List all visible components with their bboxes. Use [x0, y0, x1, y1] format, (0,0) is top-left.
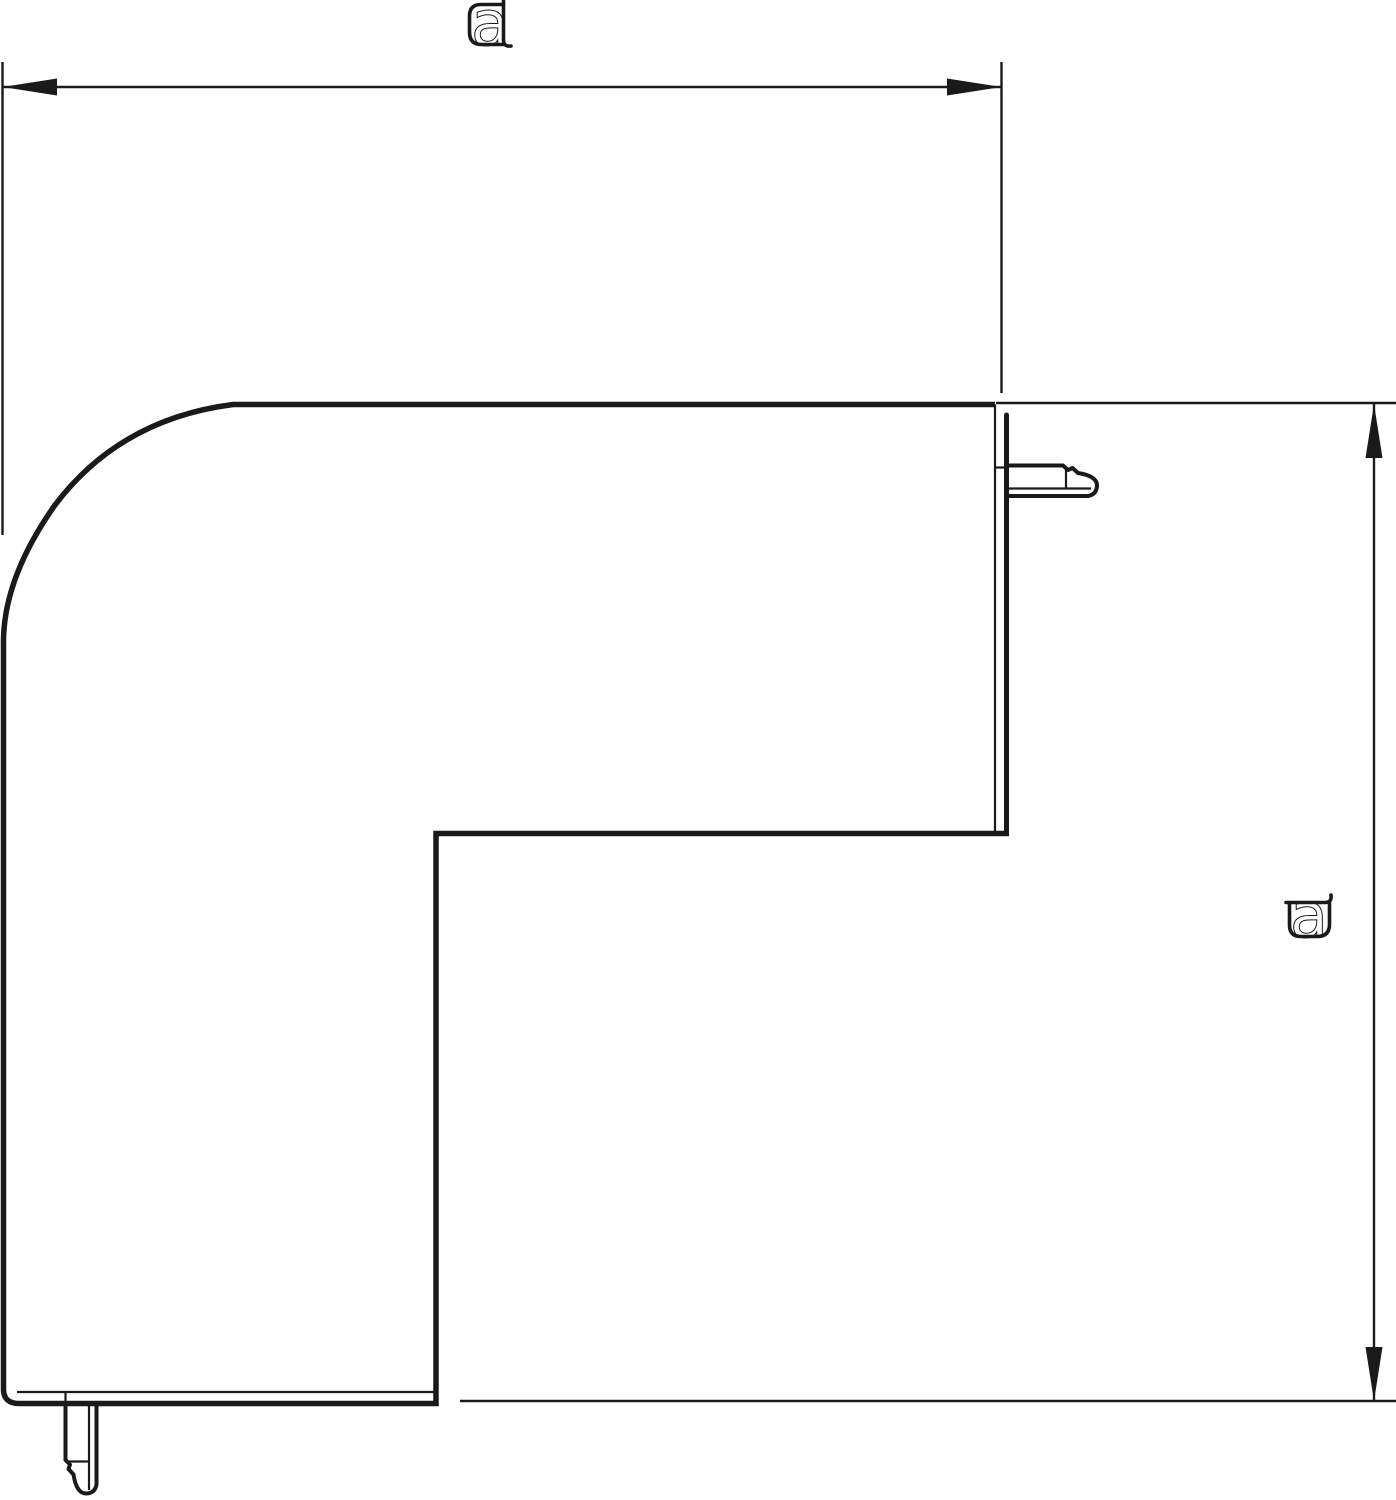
snap-tab-right	[1007, 466, 1098, 497]
snap-tab-bottom-outline	[66, 1406, 97, 1494]
drawing-lines: a a	[3, 0, 1396, 1494]
part-outline	[4, 405, 1010, 1404]
technical-drawing-page: a a	[0, 0, 1396, 1500]
dimension-height: a	[460, 403, 1396, 1401]
dimension-height-arrowhead-bottom	[1366, 1347, 1383, 1401]
dimension-width-arrowhead-left	[3, 79, 58, 96]
dimension-height-arrowhead-top	[1366, 404, 1383, 458]
corner-piece-technical-drawing: a a	[0, 0, 1396, 1500]
snap-tab-bottom	[66, 1406, 97, 1494]
dimension-width: a	[3, 0, 1002, 535]
part-outer-contour	[4, 405, 1010, 1404]
dimension-width-label: a	[471, 0, 509, 60]
snap-tab-right-outline	[1007, 466, 1098, 497]
dimension-height-label: a	[1290, 879, 1328, 952]
dimension-width-arrowhead-right	[947, 79, 1002, 96]
